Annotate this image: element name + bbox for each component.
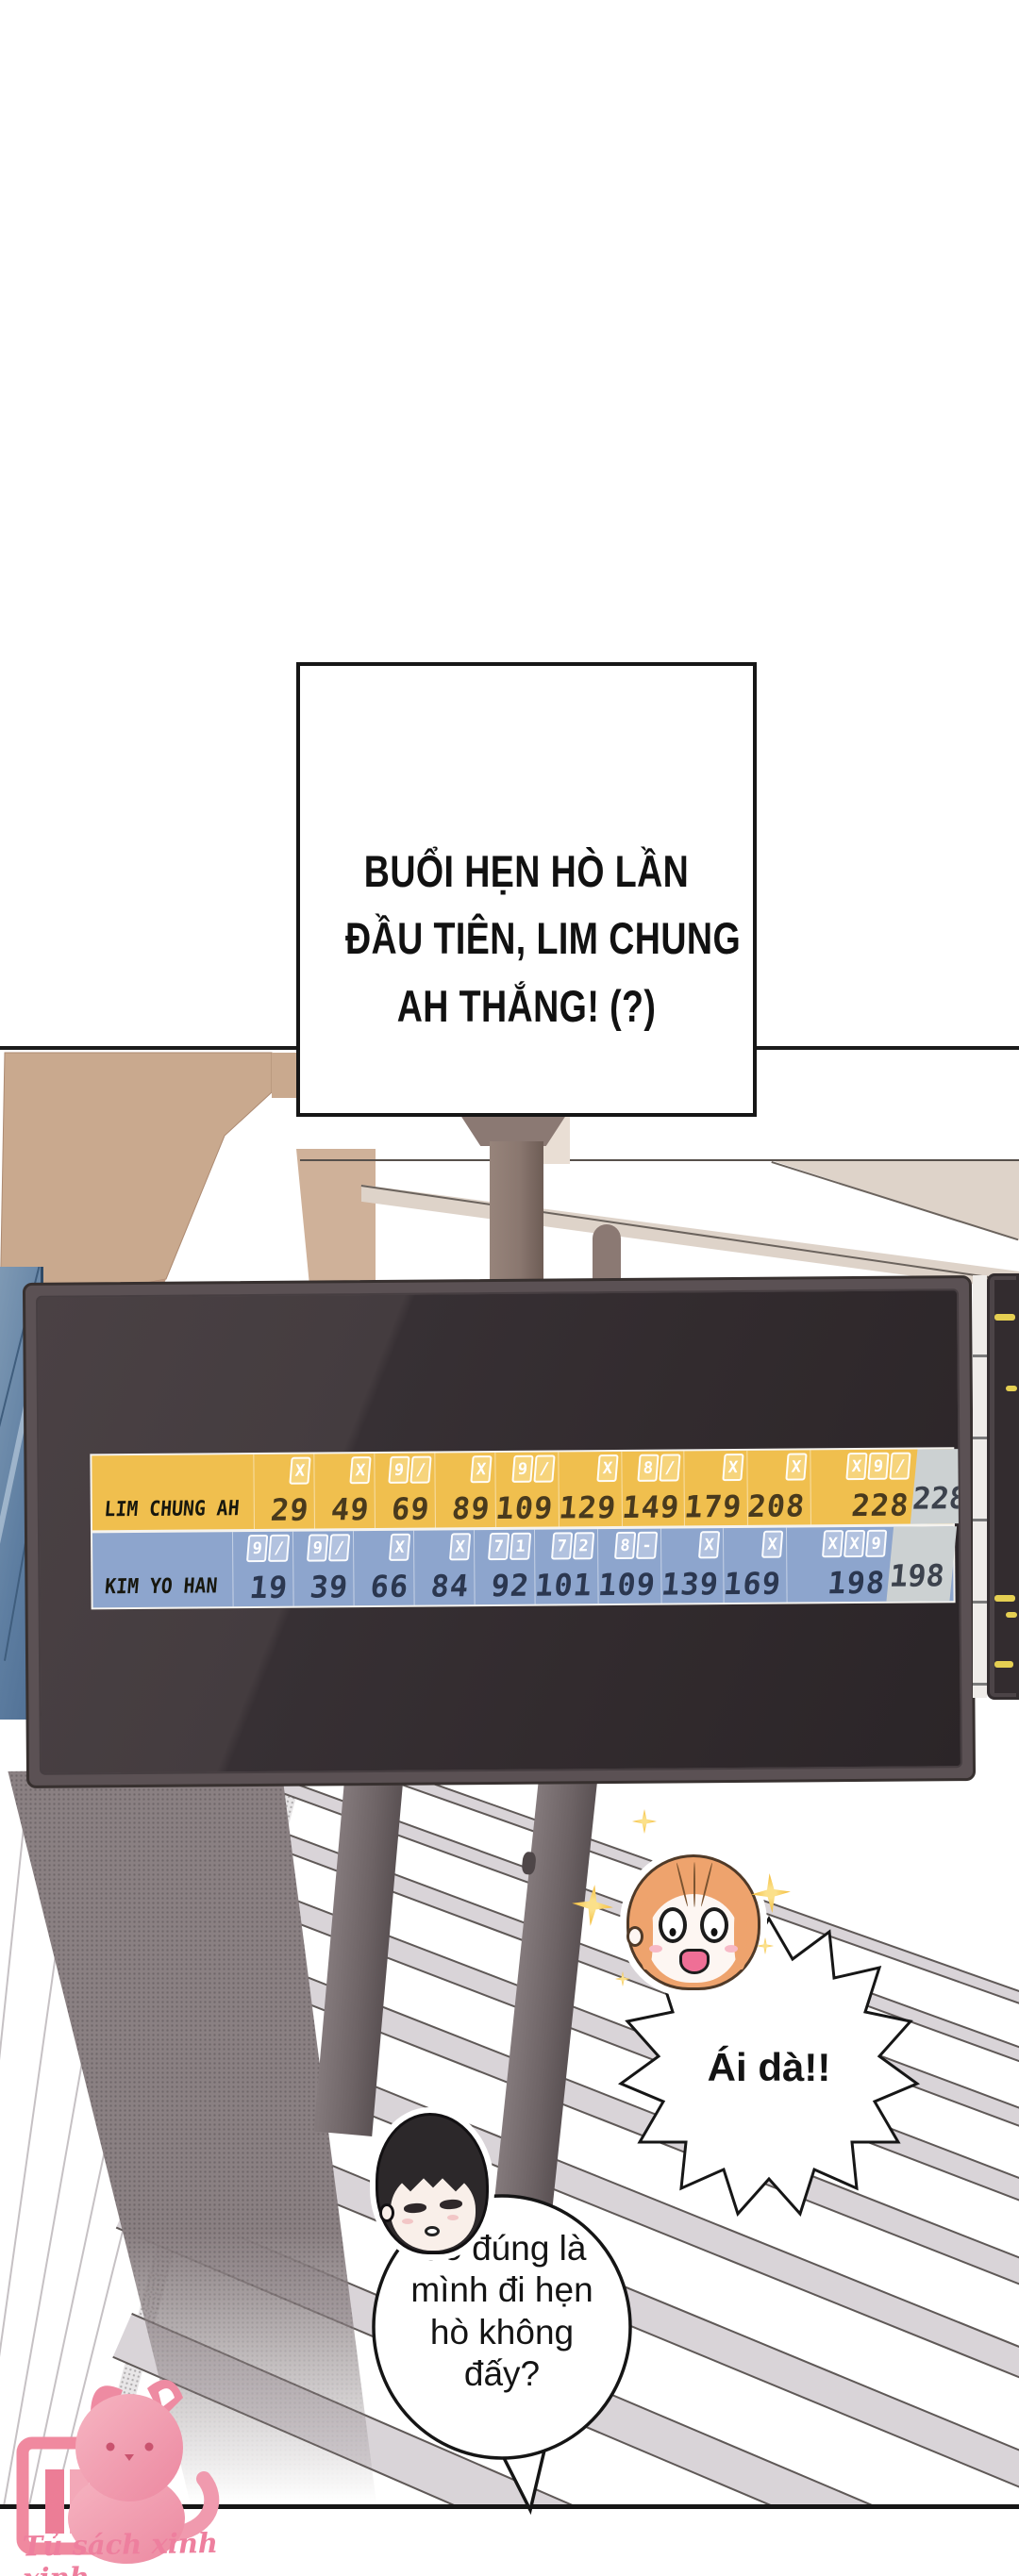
frame-mark-box: X: [844, 1530, 865, 1557]
frame-cell: X139: [660, 1528, 724, 1604]
girl-bang-line: [693, 1862, 695, 1907]
frame-mark-box: X: [698, 1531, 720, 1558]
frame-cell: 8-109: [597, 1529, 660, 1604]
boy-ear: [379, 2203, 394, 2222]
watermark-credit: Tủ sách xinh xinh: [22, 2526, 287, 2576]
frame-score: 208: [746, 1482, 812, 1525]
screen-mount-rail: [973, 1275, 987, 1698]
frame-mark-box: /: [660, 1454, 681, 1481]
frame-score: 228: [810, 1482, 916, 1525]
lane-light: [994, 1595, 1015, 1602]
frame-marks: 9/: [233, 1532, 292, 1564]
frame-cell: 9/19: [232, 1532, 293, 1607]
frame-mark-box: /: [268, 1535, 290, 1562]
frame-score: 92: [473, 1562, 536, 1605]
boy-blush: [447, 2215, 459, 2220]
tv-screen-main: LIM CHUNG AHX29X499/69X899/109X1298/149X…: [23, 1275, 976, 1788]
comic-page: LIM CHUNG AHX29X499/69X899/109X1298/149X…: [0, 0, 1019, 2576]
frame-score: 19: [231, 1564, 294, 1607]
scoreboard: LIM CHUNG AHX29X499/69X899/109X1298/149X…: [90, 1447, 955, 1609]
frame-mark-box: 8: [614, 1532, 636, 1559]
narration-line: BUỔI HẸN HÒ LẦN: [345, 838, 708, 905]
frame-cell: 72101: [534, 1529, 597, 1604]
pole-knob: [521, 1852, 536, 1875]
tv-side-glass: [994, 1280, 1016, 1693]
frame-mark-box: X: [785, 1453, 807, 1480]
frame-score: 109: [494, 1484, 560, 1527]
ceiling-line-thin: [300, 1159, 1019, 1161]
frame-cell: 8/149: [621, 1451, 684, 1526]
lane-light: [994, 1661, 1013, 1668]
frame-mark-box: 9: [307, 1534, 328, 1561]
frame-cell: X9/228: [810, 1450, 914, 1525]
frame-mark-box: /: [328, 1534, 350, 1561]
frame-score: 169: [723, 1560, 789, 1604]
frame-score: 109: [596, 1561, 662, 1604]
frame-marks: 9/: [293, 1531, 353, 1563]
frame-score: 66: [352, 1563, 415, 1606]
tv-screen-side: [987, 1273, 1019, 1700]
frame-marks: 72: [535, 1529, 597, 1562]
girl-exclaim-text: Ái dà!!: [675, 2045, 863, 2090]
frame-mark-box: /: [533, 1455, 555, 1483]
frame-mark-box: /: [409, 1456, 431, 1484]
tv-mount-pole: [490, 1141, 543, 1292]
boy-head: [376, 2113, 489, 2254]
frame-marks: X: [435, 1453, 494, 1485]
frame-cell: 9/69: [374, 1454, 435, 1529]
boy-blush: [402, 2219, 413, 2224]
frame-mark-box: 9: [246, 1535, 268, 1562]
frame-marks: X: [414, 1530, 474, 1562]
frame-mark-box: 9: [511, 1455, 533, 1483]
frame-marks: XX9: [787, 1527, 890, 1560]
player-name: KIM YO HAN: [93, 1532, 225, 1607]
frame-cell: XX9198: [786, 1527, 891, 1603]
frame-score: 84: [412, 1562, 476, 1605]
frame-marks: 8-: [598, 1529, 660, 1562]
frame-cell: X129: [558, 1452, 621, 1527]
player-name: LIM CHUNG AH: [92, 1454, 243, 1530]
frame-cell: X179: [684, 1451, 747, 1526]
lane-light: [1006, 1386, 1017, 1391]
lane-light: [1006, 1612, 1017, 1618]
frame-score: 139: [660, 1560, 726, 1604]
frame-cell: X29: [253, 1454, 314, 1530]
frame-mark-box: X: [470, 1455, 492, 1483]
narration-box: BUỔI HẸN HÒ LẦN ĐẦU TIÊN, LIM CHUNG AH T…: [296, 662, 757, 1117]
frame-cell: X169: [723, 1528, 786, 1604]
frame-mark-box: X: [389, 1534, 410, 1561]
frame-score: 49: [313, 1486, 376, 1529]
frame-mark-box: X: [761, 1531, 783, 1558]
girl-head: [626, 1854, 760, 1990]
girl-blush: [649, 1945, 662, 1953]
boy-speech-line: đấy?: [379, 2353, 625, 2395]
narration-line: ĐẦU TIÊN, LIM CHUNG: [345, 905, 708, 972]
girl-hair-strand: [734, 1898, 747, 1969]
boy-speech-line: hò không: [379, 2312, 625, 2353]
frame-score: 89: [434, 1485, 497, 1528]
frame-cell: X66: [353, 1531, 414, 1606]
frame-marks: X9/: [810, 1450, 913, 1483]
frame-mark-box: X: [822, 1530, 844, 1557]
frame-score: 198: [785, 1559, 892, 1603]
frame-cell: 7192: [474, 1530, 535, 1605]
frame-marks: 9/: [495, 1453, 558, 1486]
total-score: 228: [910, 1449, 962, 1524]
frame-cell: X49: [313, 1454, 375, 1529]
frame-score: 39: [292, 1563, 355, 1606]
frame-cell: X208: [746, 1450, 810, 1525]
frame-score: 149: [620, 1483, 686, 1526]
frame-cell: X84: [413, 1530, 475, 1605]
frame-marks: 8/: [622, 1451, 684, 1484]
frame-mark-box: /: [889, 1453, 910, 1480]
frame-marks: X: [661, 1528, 724, 1561]
frame-marks: X: [724, 1528, 786, 1561]
girl-mouth: [679, 1949, 710, 1974]
frame-mark-box: X: [596, 1454, 618, 1482]
lane-light: [994, 1314, 1015, 1321]
frame-mark-box: X: [349, 1456, 371, 1484]
frame-mark-box: X: [289, 1457, 310, 1485]
boy-mouth: [425, 2226, 440, 2236]
frame-mark-box: 7: [551, 1532, 573, 1559]
frame-score: 129: [557, 1484, 623, 1527]
frame-mark-box: 1: [509, 1533, 531, 1560]
frame-mark-box: -: [636, 1532, 658, 1559]
tv-screen-glass: LIM CHUNG AHX29X499/69X899/109X1298/149X…: [36, 1288, 962, 1775]
frame-score: 69: [374, 1486, 437, 1529]
narration-line: AH THẮNG! (?): [345, 972, 708, 1039]
frame-mark-box: X: [845, 1453, 867, 1480]
scoreboard-row: LIM CHUNG AHX29X499/69X899/109X1298/149X…: [92, 1449, 953, 1530]
boy-speech-line: mình đi hẹn: [379, 2269, 625, 2311]
girl-ear: [626, 1926, 643, 1947]
frame-marks: X: [354, 1531, 413, 1563]
frame-cell: 9/109: [494, 1453, 558, 1528]
frame-mark-box: 9: [867, 1453, 889, 1480]
frame-marks: X: [747, 1450, 810, 1483]
frame-marks: 71: [475, 1530, 534, 1562]
frame-cell: X89: [434, 1453, 495, 1528]
girl-eye: [659, 1907, 687, 1943]
frame-score: 29: [253, 1487, 316, 1530]
frame-mark-box: 9: [865, 1530, 887, 1557]
total-score: 198: [887, 1526, 957, 1602]
frame-marks: X: [314, 1454, 374, 1486]
frame-mark-box: 8: [638, 1454, 660, 1482]
frame-mark-box: 9: [388, 1456, 409, 1484]
girl-eye: [700, 1907, 728, 1943]
frame-marks: X: [685, 1451, 747, 1484]
frame-mark-box: X: [722, 1454, 743, 1481]
frame-mark-box: 7: [488, 1533, 509, 1560]
frame-marks: 9/: [375, 1454, 434, 1486]
frame-mark-box: 2: [573, 1532, 594, 1559]
frame-marks: X: [254, 1454, 313, 1487]
girl-blush: [725, 1945, 738, 1953]
scoreboard-row: KIM YO HAN9/199/39X66X847192721018-109X1…: [92, 1526, 954, 1607]
frame-marks: X: [559, 1452, 621, 1485]
frame-score: 101: [533, 1561, 599, 1604]
frame-cell: 9/39: [292, 1531, 354, 1606]
frame-score: 179: [683, 1483, 749, 1526]
frame-mark-box: X: [449, 1533, 471, 1560]
